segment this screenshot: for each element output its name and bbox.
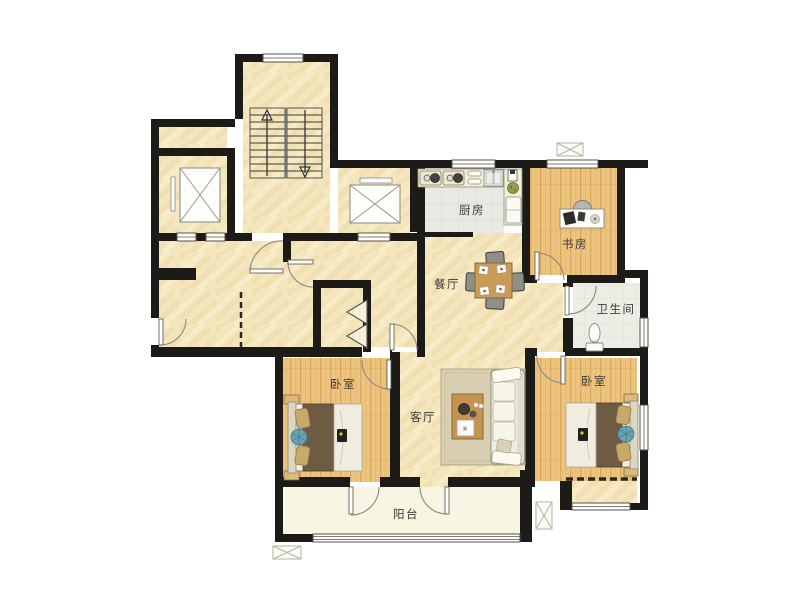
dining-chair-right bbox=[511, 273, 525, 292]
corridor-side-door-leaf bbox=[159, 319, 163, 345]
desk-item bbox=[577, 212, 585, 222]
bedroom-right-door-leaf bbox=[561, 356, 565, 384]
label-kitchen: 厨房 bbox=[459, 203, 485, 217]
balcony-door-left-leaf bbox=[349, 487, 353, 514]
balcony-door-right-leaf bbox=[445, 487, 449, 514]
ac-unit-top bbox=[557, 143, 583, 156]
vestibule-door-leaf bbox=[288, 260, 313, 264]
fridge bbox=[506, 197, 521, 223]
elevator-1-door bbox=[171, 177, 175, 211]
label-living-room: 客厅 bbox=[410, 410, 436, 424]
pillow bbox=[294, 445, 310, 466]
stairwell-door-leaf bbox=[250, 269, 283, 273]
bedroom-right-furniture bbox=[566, 394, 638, 476]
label-bathroom: 卫生间 bbox=[597, 302, 636, 316]
study-door-leaf bbox=[535, 252, 539, 280]
living-furniture bbox=[441, 367, 525, 466]
cup bbox=[470, 411, 477, 418]
hall-nook-floor bbox=[522, 283, 563, 352]
elevator-2-door bbox=[360, 178, 392, 183]
kitchen-sink bbox=[484, 170, 503, 186]
label-bedroom-left: 卧室 bbox=[330, 377, 356, 391]
floor-plan: 厨房 书房 餐厅 卫生间 卧室 客厅 卧室 阳台 bbox=[0, 0, 800, 600]
ac-unit-bottom bbox=[273, 546, 301, 559]
kitchen-jar bbox=[508, 170, 517, 181]
unit-entry-door-leaf bbox=[390, 324, 394, 350]
balcony-window bbox=[313, 534, 520, 542]
pillow bbox=[616, 442, 632, 462]
label-balcony: 阳台 bbox=[393, 507, 419, 521]
sofa bbox=[491, 367, 524, 466]
elevator-2 bbox=[350, 178, 400, 223]
toilet-tank bbox=[586, 343, 603, 351]
desk-lamp bbox=[591, 215, 600, 224]
pillow bbox=[295, 408, 311, 429]
bed-fan-decor bbox=[291, 429, 307, 445]
bathroom-door-leaf bbox=[565, 286, 569, 315]
label-dining: 餐厅 bbox=[434, 277, 460, 291]
coffee-table bbox=[452, 394, 483, 439]
toilet-bowl bbox=[589, 324, 600, 343]
kettle bbox=[459, 404, 470, 415]
lobby-hall-floor bbox=[159, 127, 227, 148]
bed-fan-decor bbox=[618, 426, 634, 442]
label-bedroom-right: 卧室 bbox=[581, 374, 607, 388]
ac-unit-right bbox=[536, 502, 552, 529]
bedroom-left-door-leaf bbox=[387, 360, 391, 389]
label-study: 书房 bbox=[562, 237, 588, 251]
floor-plan-page: 厨房 书房 餐厅 卫生间 卧室 客厅 卧室 阳台 bbox=[0, 0, 800, 600]
stair-divider bbox=[285, 108, 287, 178]
bed-tray bbox=[578, 428, 588, 441]
bed-tray bbox=[337, 429, 347, 442]
kitchen-plant bbox=[508, 183, 519, 194]
bedroom-left-furniture bbox=[284, 395, 362, 480]
bay-window-floor bbox=[566, 481, 637, 503]
pillow bbox=[616, 405, 632, 425]
